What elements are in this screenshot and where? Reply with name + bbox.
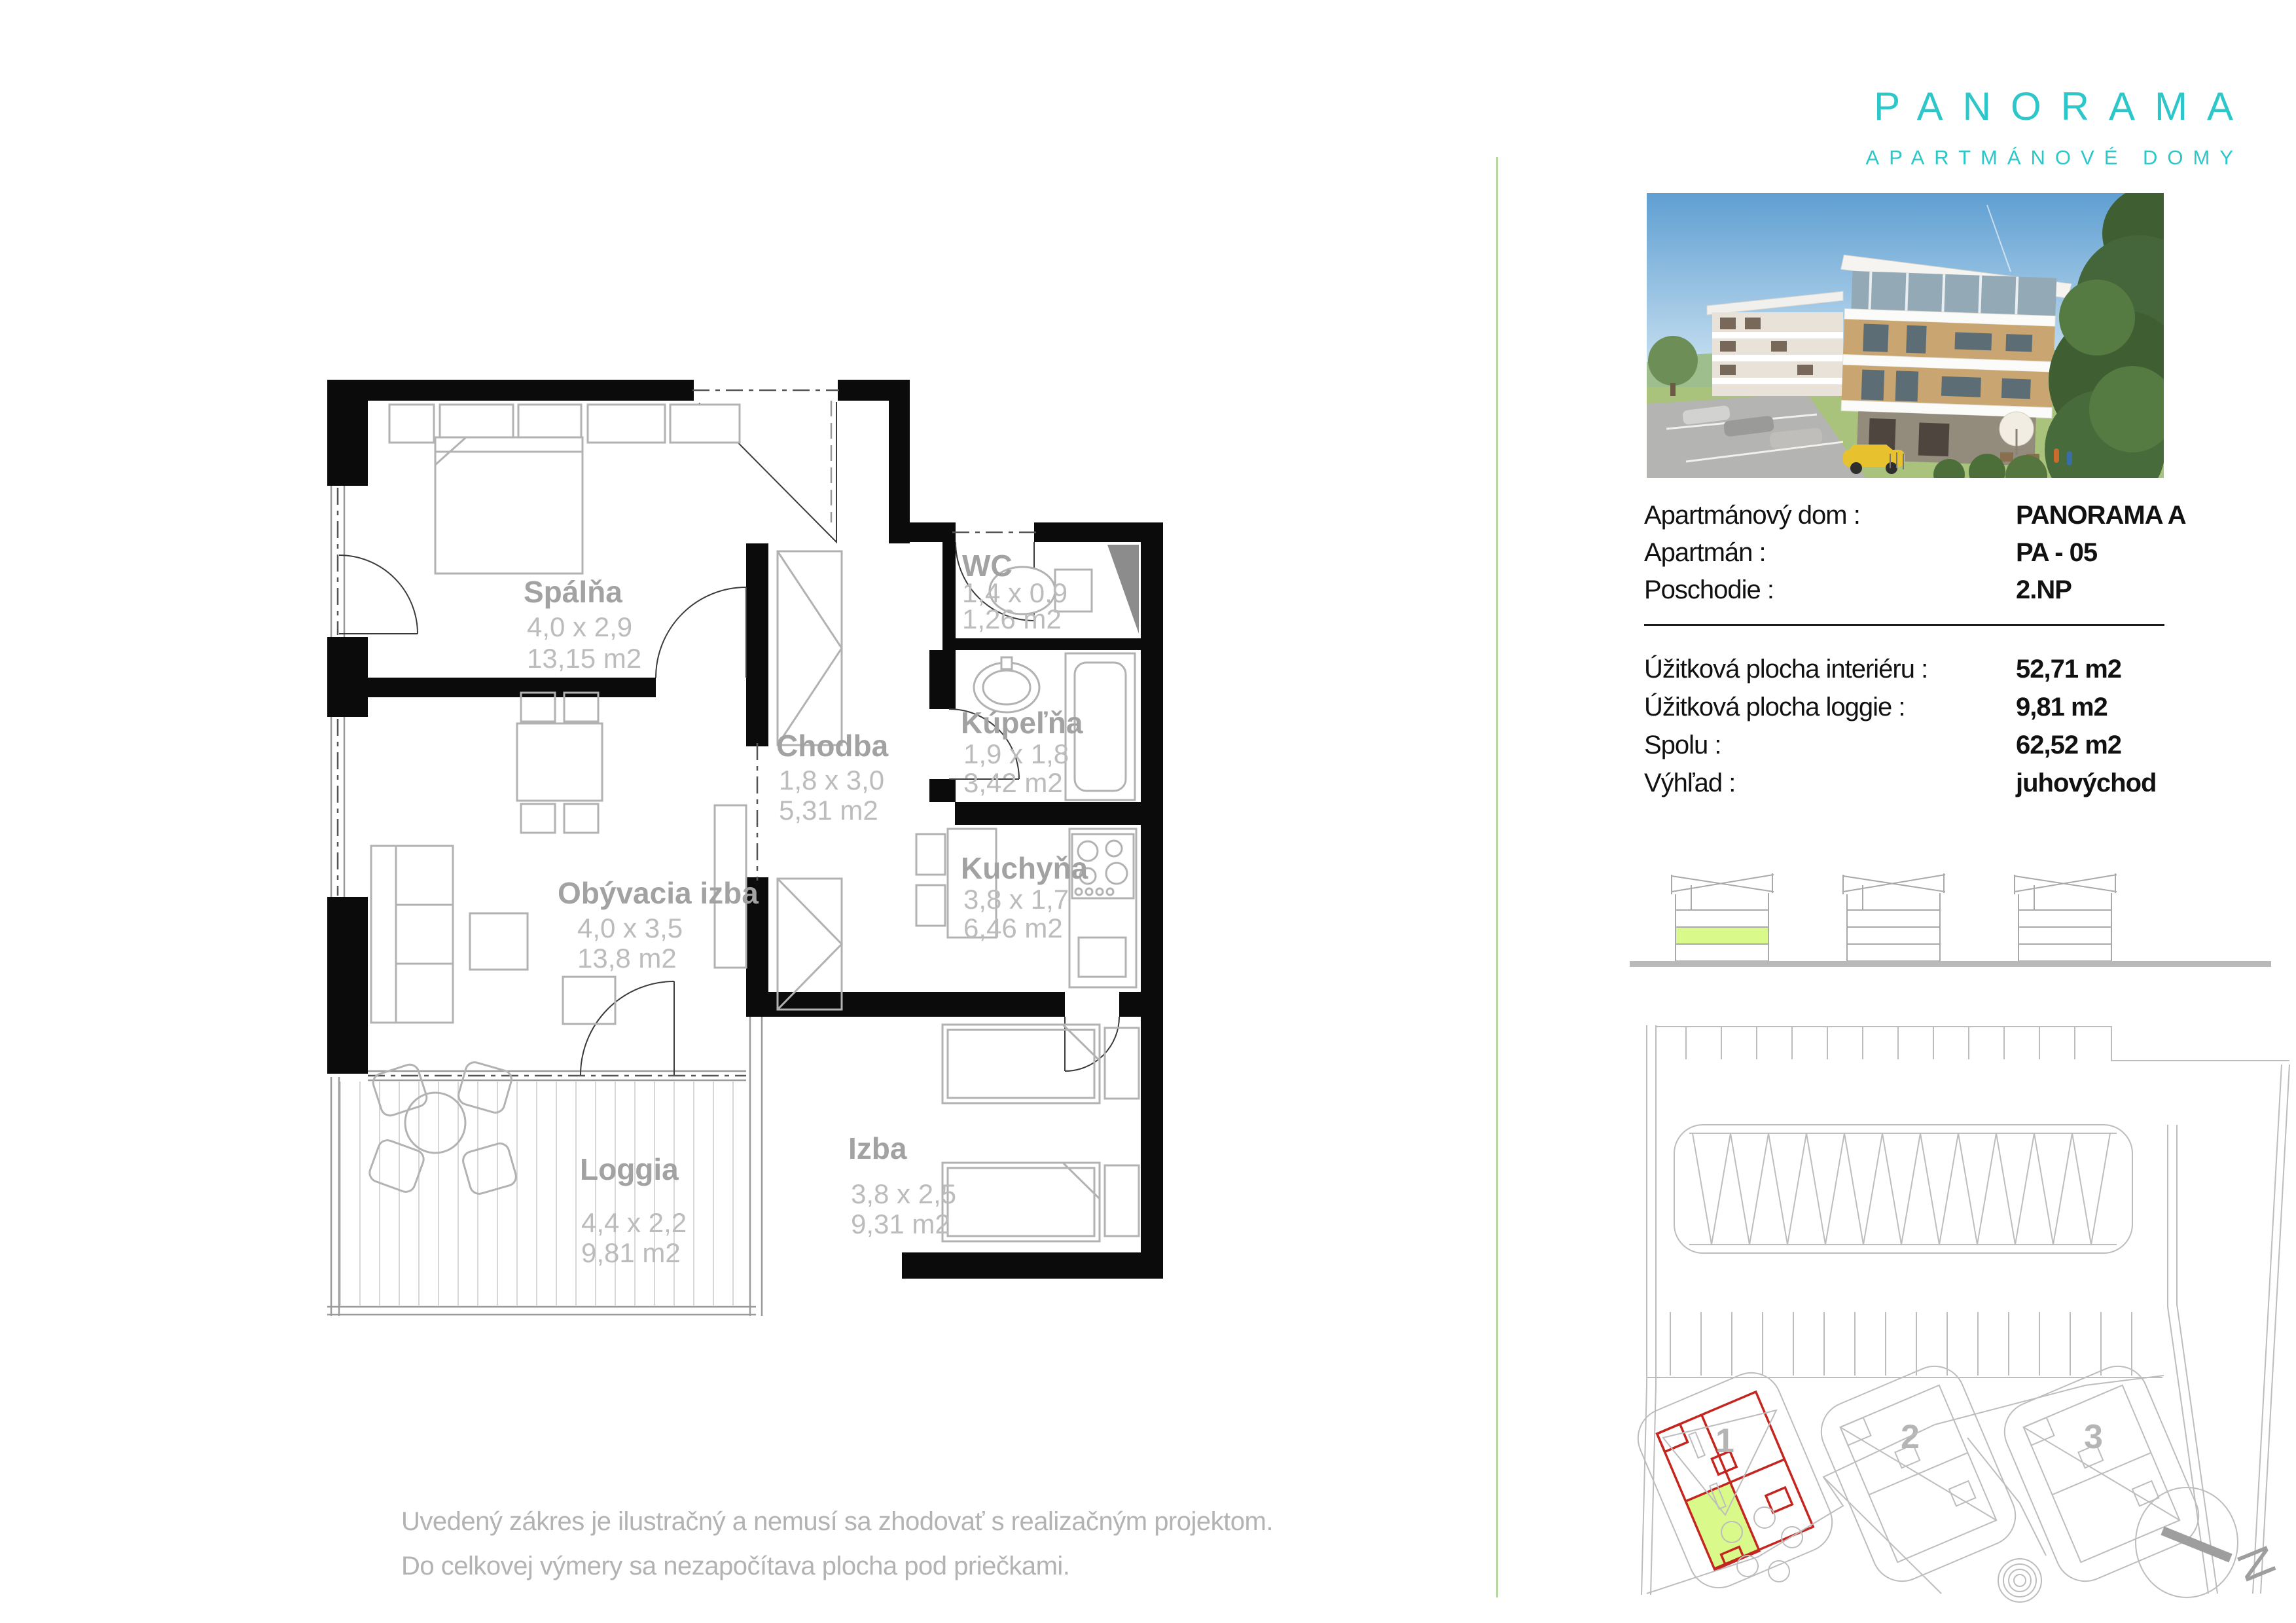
info-row: Spolu : 62,52 m2 (1644, 731, 2233, 763)
room-label-chodba: Chodba (776, 729, 889, 763)
brand-subtitle: APARTMÁNOVÉ DOMY (1636, 146, 2243, 170)
room-dims: 3,8 x 1,7 (963, 884, 1069, 915)
info-label: Výhľad : (1644, 769, 1735, 798)
elevation-highlighted-floor (1676, 927, 1768, 944)
site-building-2-label: 2 (1901, 1418, 1920, 1456)
loggia-chair (456, 1060, 513, 1114)
kitchen-sink (1079, 938, 1126, 977)
loggia-chair (461, 1141, 518, 1195)
info-row: Úžitková plocha interiéru : 52,71 m2 (1644, 655, 2233, 687)
dining-table (517, 723, 602, 801)
room-area: 9,81 m2 (581, 1237, 681, 1268)
info-label: Spolu : (1644, 731, 1721, 760)
site-building-3-label: 3 (2084, 1418, 2103, 1456)
chair (916, 834, 945, 875)
chair (916, 885, 945, 926)
north-label: N (2227, 1539, 2286, 1588)
room-dims: 1,8 x 3,0 (779, 765, 884, 795)
nightstand (1105, 1165, 1139, 1236)
room-label-kuchyna: Kuchyňa (961, 851, 1088, 885)
loggia-table (405, 1093, 465, 1153)
info-label: Poschodie : (1644, 575, 1774, 605)
bedroom-furniture (389, 405, 740, 574)
building-render-photo (1647, 193, 2164, 478)
room-dims: 4,0 x 3,5 (577, 913, 683, 943)
room-label-obyvacia: Obývacia izba (558, 876, 759, 910)
info-table-divider (1644, 624, 2164, 626)
info-value: PANORAMA A (2016, 501, 2186, 530)
room-label-kupelna: Kúpeľňa (961, 706, 1083, 740)
room-area: 13,8 m2 (577, 943, 677, 974)
site-plan: 1 2 3 N (1627, 1019, 2296, 1608)
elevation-building-a (1672, 873, 1774, 961)
north-arrow: N (2136, 1487, 2286, 1597)
info-value: 2.NP (2016, 575, 2072, 605)
info-label: Úžitková plocha loggie : (1644, 693, 1905, 722)
tap (1001, 657, 1012, 669)
info-label: Apartmánový dom : (1644, 501, 1860, 530)
site-building-3 (1995, 1357, 2208, 1591)
room-area: 13,15 m2 (527, 643, 641, 674)
chair (521, 804, 555, 833)
site-building-1-label: 1 (1715, 1422, 1734, 1460)
brand-logo-text: PANORAMA (1636, 84, 2253, 129)
info-label: Apartmán : (1644, 538, 1766, 568)
coffee-table (470, 913, 528, 970)
floor-elevation-diagram (1669, 871, 2140, 969)
living-room-furniture (371, 693, 746, 1024)
info-table-identity: Apartmánový dom : PANORAMA A Apartmán : … (1644, 501, 2233, 625)
room-area: 5,31 m2 (779, 795, 878, 826)
floor-plan: Spálňa 4,0 x 2,9 13,15 m2 WC 1,4 x 0,9 1… (327, 380, 1165, 1316)
section-divider-line (1496, 157, 1498, 1597)
room-area: 3,42 m2 (963, 767, 1063, 798)
room-dims: 3,8 x 2,5 (851, 1178, 956, 1209)
info-value: 62,52 m2 (2016, 731, 2121, 760)
room-label-spalna: Spálňa (524, 575, 622, 609)
room-area: 9,31 m2 (851, 1209, 950, 1239)
bedside-table (389, 405, 434, 443)
loggia-door-arc (581, 981, 674, 1075)
info-row: Apartmán : PA - 05 (1644, 538, 2233, 571)
info-row: Výhľad : juhovýchod (1644, 769, 2233, 801)
double-bed (435, 437, 583, 574)
site-parking-middle (1670, 1312, 2132, 1376)
info-row: Úžitková plocha loggie : 9,81 m2 (1644, 693, 2233, 725)
room-furniture (942, 1025, 1139, 1241)
elevation-building-b (1843, 873, 1945, 961)
side-table (563, 977, 615, 1024)
room-label-loggia: Loggia (580, 1152, 679, 1186)
room-area: 1,26 m2 (962, 604, 1062, 634)
info-row: Apartmánový dom : PANORAMA A (1644, 501, 2233, 534)
room-area: 6,46 m2 (963, 913, 1063, 943)
loggia-decking (340, 1082, 733, 1305)
info-label: Úžitková plocha interiéru : (1644, 655, 1928, 684)
nightstand (1105, 1028, 1139, 1099)
site-building-2 (1812, 1357, 2024, 1591)
info-value: 52,71 m2 (2016, 655, 2121, 684)
room-dims: 4,4 x 2,2 (581, 1207, 687, 1238)
north-arrow-bar (2162, 1531, 2231, 1558)
brand-block: PANORAMA APARTMÁNOVÉ DOMY (1636, 84, 2233, 170)
wardrobe (670, 405, 740, 443)
site-building-1 (1628, 1364, 1841, 1597)
site-parking-top (1686, 1027, 2075, 1059)
info-value: juhovýchod (2016, 769, 2156, 798)
info-table-areas: Úžitková plocha interiéru : 52,71 m2 Úži… (1644, 655, 2233, 812)
elevation-ground-line (1630, 961, 2271, 967)
shaft (1107, 545, 1139, 634)
info-row: Poschodie : 2.NP (1644, 575, 2233, 608)
bedroom-door-arc (656, 587, 746, 678)
wardrobe (588, 405, 665, 443)
bedroom-window-door-arc (339, 555, 418, 634)
site-carports (1674, 1125, 2132, 1253)
info-value: PA - 05 (2016, 538, 2097, 568)
info-value: 9,81 m2 (2016, 693, 2108, 722)
sofa (371, 846, 453, 1023)
room-dims: 4,0 x 2,9 (527, 611, 632, 642)
room-dims: 1,9 x 1,8 (963, 739, 1069, 769)
room-label-izba: Izba (848, 1131, 907, 1165)
chair (564, 804, 598, 833)
elevation-building-c (2015, 873, 2117, 961)
disclaimer-line-1: Uvedený zákres je ilustračný a nemusí sa… (401, 1507, 1273, 1537)
disclaimer-line-2: Do celkovej výmery sa nezapočítava ploch… (401, 1552, 1069, 1581)
